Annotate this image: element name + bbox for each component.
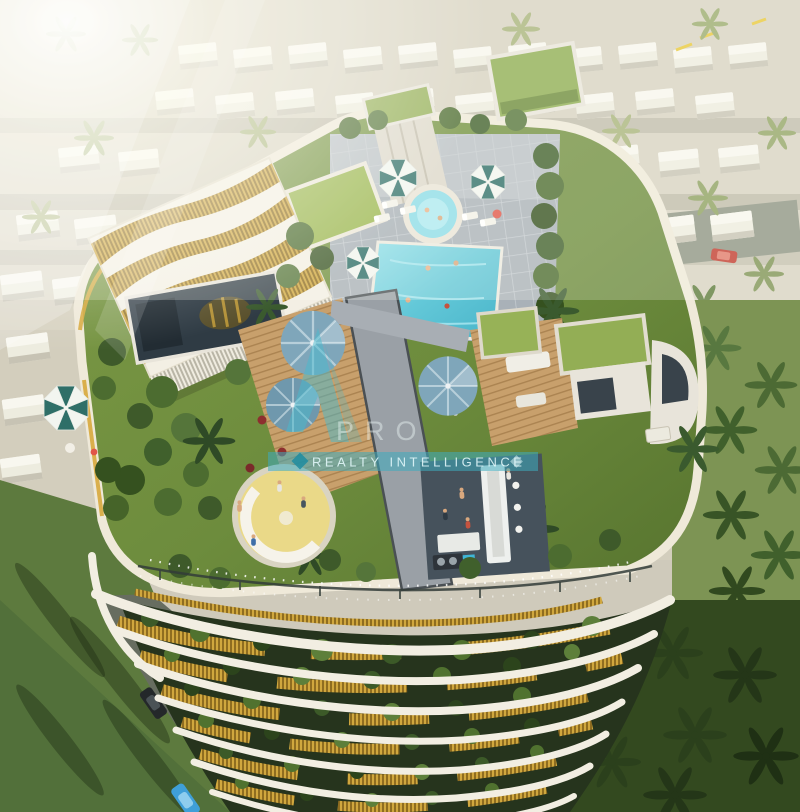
watermark-tagline-text: REALTY INTELLIGENCE: [312, 455, 525, 470]
watermark-logo-text: PRO: [336, 416, 428, 446]
aerial-render-canvas: PRO REALTY INTELLIGENCE: [0, 0, 800, 812]
aerial-render: PRO REALTY INTELLIGENCE: [0, 0, 800, 812]
planter-box: [645, 426, 671, 442]
sunken-lounge: [232, 464, 336, 568]
bbq-bar-area: [420, 453, 550, 579]
